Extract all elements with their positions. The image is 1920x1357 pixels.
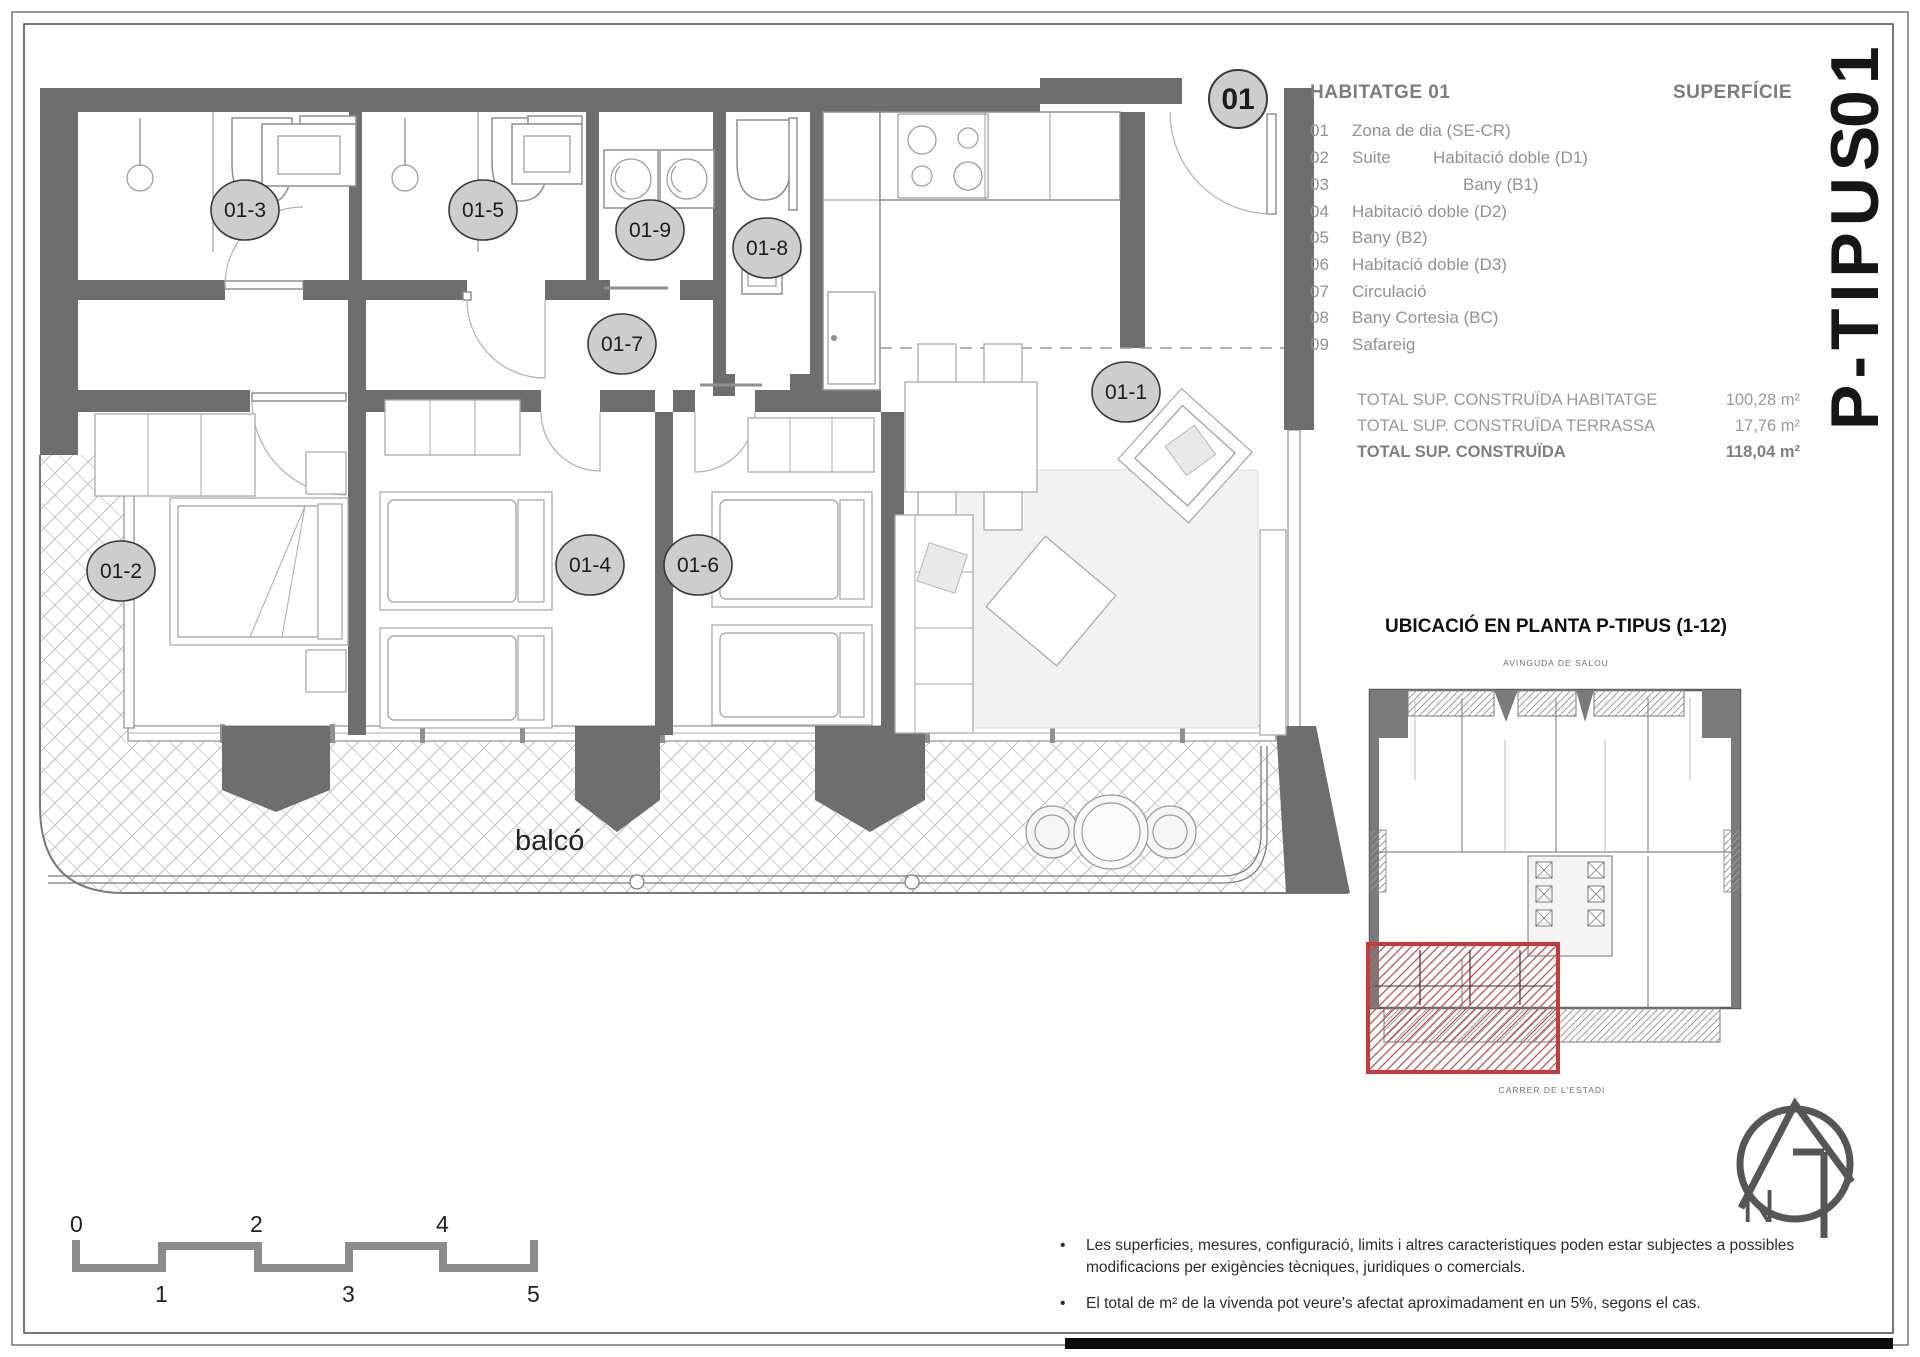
svg-text:04: 04: [1310, 202, 1329, 221]
svg-text:07: 07: [1310, 282, 1329, 301]
balcony-label: balcó: [515, 825, 584, 857]
svg-text:5: 5: [527, 1281, 540, 1307]
room-label: 01-4: [556, 535, 624, 595]
street-top-label: AVINGUDA DE SALOU: [1503, 658, 1609, 668]
svg-text:•: •: [1060, 1295, 1065, 1312]
svg-text:El total de m² de la vivenda p: El total de m² de la vivenda pot veure's…: [1086, 1295, 1701, 1312]
svg-text:0: 0: [70, 1211, 83, 1237]
legend-items: 01 Zona de dia (SE-CR) 02 Suite Habitaci…: [1310, 121, 1588, 354]
svg-text:TOTAL SUP. CONSTRUÏDA: TOTAL SUP. CONSTRUÏDA: [1357, 443, 1566, 461]
svg-text:Habitació doble (D3): Habitació doble (D3): [1352, 255, 1507, 274]
svg-text:01-9: 01-9: [629, 219, 671, 242]
laundry-fixtures: [604, 150, 714, 208]
plan-sheet: balcó 01 01-1 01-2 01-3 01-4 01-5 01-6 0…: [0, 0, 1920, 1357]
svg-text:01: 01: [1221, 83, 1254, 116]
room-label: 01-8: [733, 218, 801, 278]
svg-text:01-6: 01-6: [677, 554, 719, 577]
svg-text:TOTAL SUP. CONSTRUÏDA HABITATG: TOTAL SUP. CONSTRUÏDA HABITATGE: [1357, 391, 1657, 409]
room-label: 01-9: [616, 200, 684, 260]
svg-text:Habitació doble (D2): Habitació doble (D2): [1352, 202, 1507, 221]
highlighted-unit: [1368, 944, 1558, 1072]
room-label: 01-6: [664, 535, 732, 595]
svg-text:01-1: 01-1: [1105, 381, 1147, 404]
svg-text:Circulació: Circulació: [1352, 282, 1427, 301]
balcony-furniture: [1026, 795, 1196, 869]
svg-text:Habitació doble (D1): Habitació doble (D1): [1433, 148, 1588, 167]
svg-text:TOTAL SUP. CONSTRUÏDA TERRASSA: TOTAL SUP. CONSTRUÏDA TERRASSA: [1357, 417, 1655, 435]
svg-text:118,04 m²: 118,04 m²: [1726, 443, 1801, 461]
disclaimer-notes: • Les superficies, mesures, configuració…: [1060, 1237, 1794, 1312]
svg-text:1: 1: [155, 1281, 168, 1307]
svg-text:Bany (B2): Bany (B2): [1352, 228, 1428, 247]
svg-text:Safareig: Safareig: [1352, 335, 1415, 354]
sheet-title: 01 P-TIPUS: [1817, 40, 1893, 430]
svg-text:3: 3: [342, 1281, 355, 1307]
svg-text:02: 02: [1310, 148, 1329, 167]
bedroom2-furniture: [380, 400, 552, 728]
svg-text:01-4: 01-4: [569, 554, 611, 577]
living-furniture: [895, 344, 1286, 735]
legend-header: HABITATGE 01: [1310, 82, 1450, 103]
svg-text:•: •: [1060, 1237, 1065, 1254]
svg-text:06: 06: [1310, 255, 1329, 274]
svg-text:100,28 m²: 100,28 m²: [1726, 391, 1801, 409]
svg-text:Bany Cortesia (BC): Bany Cortesia (BC): [1352, 308, 1498, 327]
svg-text:Les superficies, mesures, conf: Les superficies, mesures, configuració, …: [1086, 1237, 1794, 1254]
svg-text:P-TIPUS: P-TIPUS: [1817, 120, 1893, 430]
superficie-header: SUPERFÍCIE: [1673, 81, 1792, 103]
svg-text:01: 01: [1817, 40, 1893, 128]
street-bottom-label: CARRER DE L'ESTADI: [1499, 1085, 1606, 1095]
titleblock-strip: [1065, 1338, 1893, 1349]
room-label: 01-5: [449, 180, 517, 240]
svg-text:01-5: 01-5: [462, 199, 504, 222]
svg-text:01-3: 01-3: [224, 199, 266, 222]
legend: HABITATGE 01 SUPERFÍCIE 01 Zona de dia (…: [1310, 81, 1800, 461]
svg-text:N: N: [1742, 1180, 1775, 1232]
svg-text:17,76 m²: 17,76 m²: [1735, 417, 1801, 435]
location-title: UBICACIÓ EN PLANTA P-TIPUS (1-12): [1385, 615, 1727, 637]
svg-text:01-7: 01-7: [601, 333, 643, 356]
svg-text:Suite: Suite: [1352, 148, 1391, 167]
svg-text:Zona de dia (SE-CR): Zona de dia (SE-CR): [1352, 121, 1511, 140]
room-label: 01-1: [1092, 362, 1160, 422]
room-label: 01-7: [588, 314, 656, 374]
svg-text:09: 09: [1310, 335, 1329, 354]
room-label: 01-3: [211, 180, 279, 240]
svg-text:4: 4: [436, 1211, 449, 1237]
svg-text:2: 2: [250, 1211, 263, 1237]
svg-text:01-8: 01-8: [746, 237, 788, 260]
scale-bar: 0 2 4 1 3 5: [70, 1211, 540, 1307]
room-label: 01-2: [87, 541, 155, 601]
svg-text:01: 01: [1310, 121, 1329, 140]
svg-text:modificacions per exigències t: modificacions per exigències tècniques, …: [1086, 1259, 1525, 1276]
north-arrow-icon: N: [1740, 1104, 1852, 1238]
svg-text:05: 05: [1310, 228, 1329, 247]
svg-text:Bany (B1): Bany (B1): [1463, 175, 1539, 194]
legend-totals: TOTAL SUP. CONSTRUÏDA HABITATGE 100,28 m…: [1357, 391, 1800, 461]
svg-text:01-2: 01-2: [100, 560, 142, 583]
svg-text:08: 08: [1310, 308, 1329, 327]
room-label-entry: 01: [1209, 70, 1267, 128]
location-plan: UBICACIÓ EN PLANTA P-TIPUS (1-12) AVINGU…: [1368, 615, 1740, 1095]
svg-text:03: 03: [1310, 175, 1329, 194]
floor-plan: balcó 01 01-1 01-2 01-3 01-4 01-5 01-6 0…: [40, 70, 1350, 893]
bedroom3-furniture: [712, 418, 874, 725]
